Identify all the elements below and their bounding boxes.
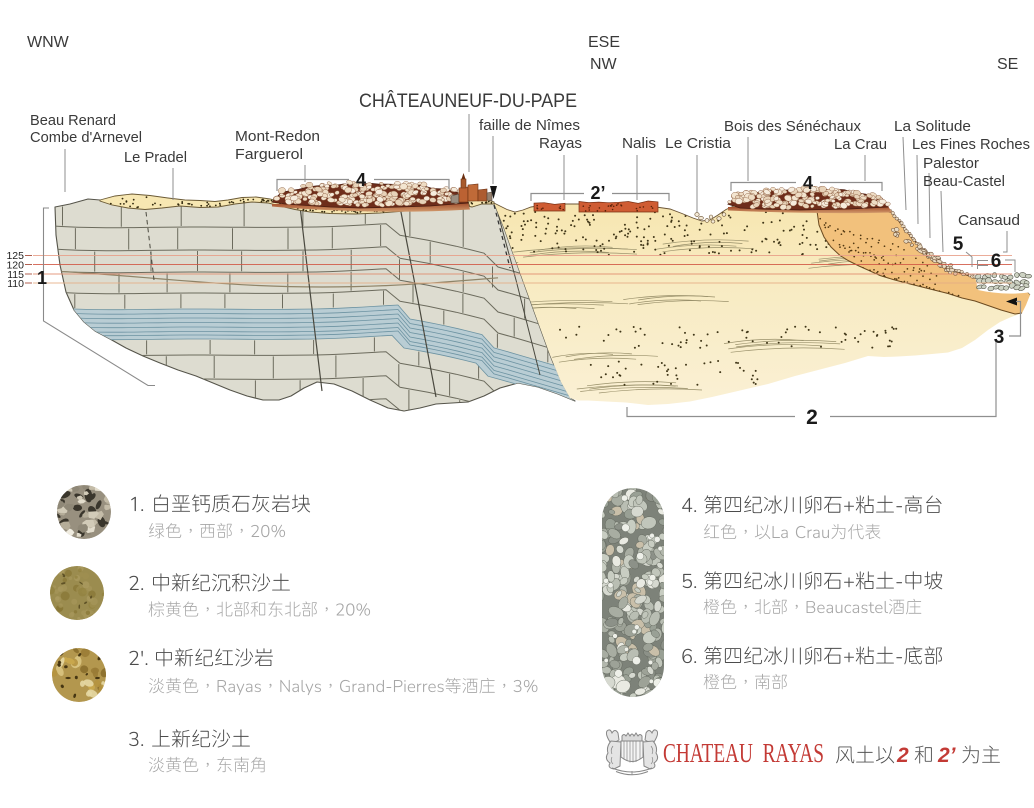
svg-text:Mont-Redon: Mont-Redon xyxy=(235,129,320,145)
svg-text:Palestor: Palestor xyxy=(923,156,979,172)
svg-text:Beau Renard: Beau Renard xyxy=(30,113,116,129)
svg-text:2: 2 xyxy=(806,406,818,429)
svg-text:Rayas: Rayas xyxy=(539,136,582,152)
svg-text:3: 3 xyxy=(994,327,1005,348)
svg-text:4: 4 xyxy=(803,173,813,193)
svg-text:Cansaud: Cansaud xyxy=(958,213,1020,229)
svg-text:Le Pradel: Le Pradel xyxy=(124,150,187,166)
svg-text:NW: NW xyxy=(590,56,618,73)
svg-text:1: 1 xyxy=(37,268,47,288)
svg-text:4: 4 xyxy=(356,170,366,190)
svg-text:Farguerol: Farguerol xyxy=(235,147,303,163)
svg-text:WNW: WNW xyxy=(27,34,70,51)
svg-text:Le Cristia: Le Cristia xyxy=(665,136,732,152)
svg-text:Combe d'Arnevel: Combe d'Arnevel xyxy=(30,130,142,146)
svg-text:2: 2 xyxy=(896,744,909,767)
svg-text:La Crau: La Crau xyxy=(834,137,887,153)
svg-text:La Solitude: La Solitude xyxy=(894,119,971,135)
svg-text:CHÂTEAUNEUF-DU-PAPE: CHÂTEAUNEUF-DU-PAPE xyxy=(359,90,577,112)
svg-text:5: 5 xyxy=(953,234,964,255)
svg-text:CHATEAU RAYAS: CHATEAU RAYAS xyxy=(663,738,824,768)
svg-text:ESE: ESE xyxy=(588,34,620,51)
svg-text:faille de Nîmes: faille de Nîmes xyxy=(479,118,580,134)
svg-text:Beau-Castel: Beau-Castel xyxy=(923,174,1005,190)
svg-text:2’: 2’ xyxy=(937,744,957,767)
svg-text:Nalis: Nalis xyxy=(622,136,656,152)
svg-text:Les Fines Roches: Les Fines Roches xyxy=(912,137,1030,153)
svg-text:6: 6 xyxy=(991,251,1002,272)
svg-text:SE: SE xyxy=(997,56,1018,73)
svg-text:2’: 2’ xyxy=(590,183,605,203)
svg-text:Bois des Sénéchaux: Bois des Sénéchaux xyxy=(724,119,862,135)
svg-text:110: 110 xyxy=(7,278,24,290)
